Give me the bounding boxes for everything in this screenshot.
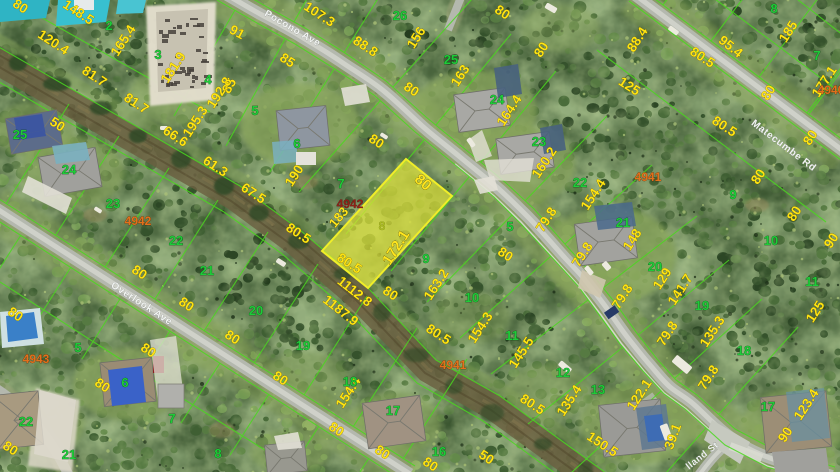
svg-text:9: 9 [729, 187, 736, 202]
svg-text:20: 20 [648, 259, 662, 274]
svg-text:5: 5 [251, 103, 258, 118]
svg-text:8: 8 [379, 219, 386, 233]
svg-text:7: 7 [337, 176, 344, 191]
svg-text:23: 23 [106, 196, 120, 211]
svg-text:26: 26 [393, 8, 407, 23]
svg-text:19: 19 [695, 298, 709, 313]
svg-text:8: 8 [770, 1, 777, 16]
svg-text:11: 11 [805, 274, 819, 289]
svg-text:25: 25 [444, 52, 458, 67]
svg-text:22: 22 [573, 175, 587, 190]
svg-text:7: 7 [168, 411, 175, 426]
svg-text:18: 18 [343, 374, 357, 389]
svg-text:9: 9 [422, 251, 429, 266]
svg-text:13: 13 [591, 382, 605, 397]
svg-text:22: 22 [19, 414, 33, 429]
svg-text:22: 22 [169, 233, 183, 248]
svg-text:4941: 4941 [635, 170, 662, 184]
svg-text:24: 24 [62, 162, 77, 177]
svg-text:3: 3 [154, 47, 161, 62]
svg-text:7: 7 [813, 48, 820, 63]
svg-text:12: 12 [556, 365, 570, 380]
svg-text:25: 25 [13, 127, 27, 142]
svg-text:17: 17 [386, 403, 400, 418]
svg-text:6: 6 [293, 136, 300, 151]
svg-text:11: 11 [505, 328, 519, 343]
svg-text:18: 18 [737, 343, 751, 358]
svg-text:21: 21 [200, 263, 214, 278]
svg-text:6: 6 [121, 375, 128, 390]
svg-text:4942: 4942 [125, 214, 152, 228]
svg-text:4940: 4940 [818, 83, 840, 97]
svg-text:19: 19 [296, 338, 310, 353]
svg-text:21: 21 [62, 447, 76, 462]
svg-text:5: 5 [506, 219, 513, 234]
svg-text:2: 2 [105, 18, 112, 33]
svg-text:10: 10 [465, 290, 479, 305]
svg-text:5: 5 [74, 340, 81, 355]
svg-text:21: 21 [616, 215, 630, 230]
svg-text:16: 16 [432, 444, 446, 459]
svg-text:17: 17 [761, 399, 775, 414]
svg-text:4: 4 [204, 72, 212, 87]
svg-text:10: 10 [764, 233, 778, 248]
svg-text:8: 8 [214, 446, 221, 461]
svg-text:4943: 4943 [23, 352, 50, 366]
svg-text:4941: 4941 [440, 358, 467, 372]
svg-text:23: 23 [532, 134, 546, 149]
svg-text:24: 24 [490, 92, 505, 107]
svg-text:20: 20 [249, 303, 263, 318]
